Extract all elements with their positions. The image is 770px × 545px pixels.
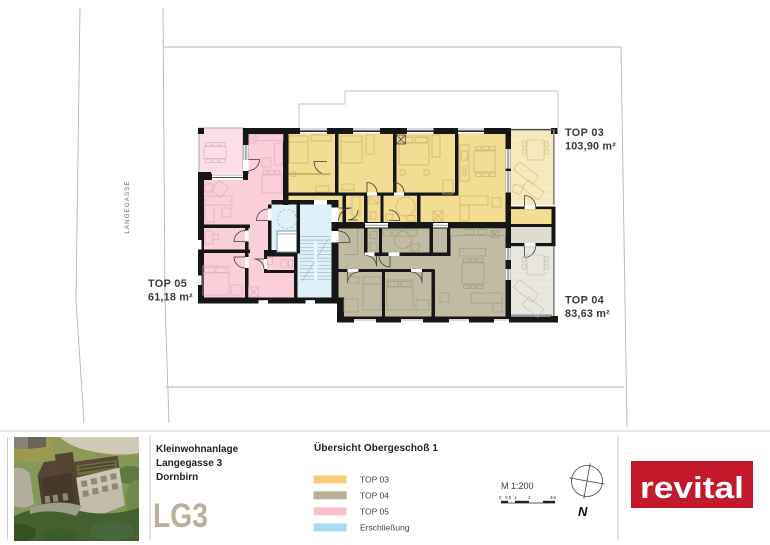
svg-text:83,63 m²: 83,63 m² bbox=[565, 308, 610, 320]
svg-text:TOP 03: TOP 03 bbox=[360, 475, 389, 485]
svg-text:4m: 4m bbox=[550, 495, 557, 500]
svg-text:Dornbirn: Dornbirn bbox=[156, 472, 198, 483]
svg-text:TOP 04: TOP 04 bbox=[360, 490, 389, 500]
svg-text:M 1:200: M 1:200 bbox=[501, 481, 534, 491]
svg-text:Langegasse 3: Langegasse 3 bbox=[156, 458, 223, 469]
svg-text:revital: revital bbox=[640, 471, 744, 505]
svg-text:N: N bbox=[578, 504, 588, 519]
svg-text:61,18 m²: 61,18 m² bbox=[148, 292, 193, 304]
svg-text:TOP 03: TOP 03 bbox=[565, 127, 604, 139]
svg-text:TOP 04: TOP 04 bbox=[565, 295, 604, 307]
svg-text:103,90 m²: 103,90 m² bbox=[565, 141, 616, 153]
svg-text:Erschließung: Erschließung bbox=[360, 522, 410, 532]
svg-text:LG3: LG3 bbox=[153, 497, 208, 535]
svg-text:0,5: 0,5 bbox=[505, 495, 512, 500]
svg-text:LANGEGASSE: LANGEGASSE bbox=[124, 180, 131, 233]
svg-text:TOP 05: TOP 05 bbox=[360, 506, 389, 516]
svg-text:Übersicht Obergeschoß 1: Übersicht Obergeschoß 1 bbox=[314, 441, 438, 454]
svg-text:TOP 05: TOP 05 bbox=[148, 278, 187, 290]
svg-text:Kleinwohnanlage: Kleinwohnanlage bbox=[156, 444, 239, 455]
